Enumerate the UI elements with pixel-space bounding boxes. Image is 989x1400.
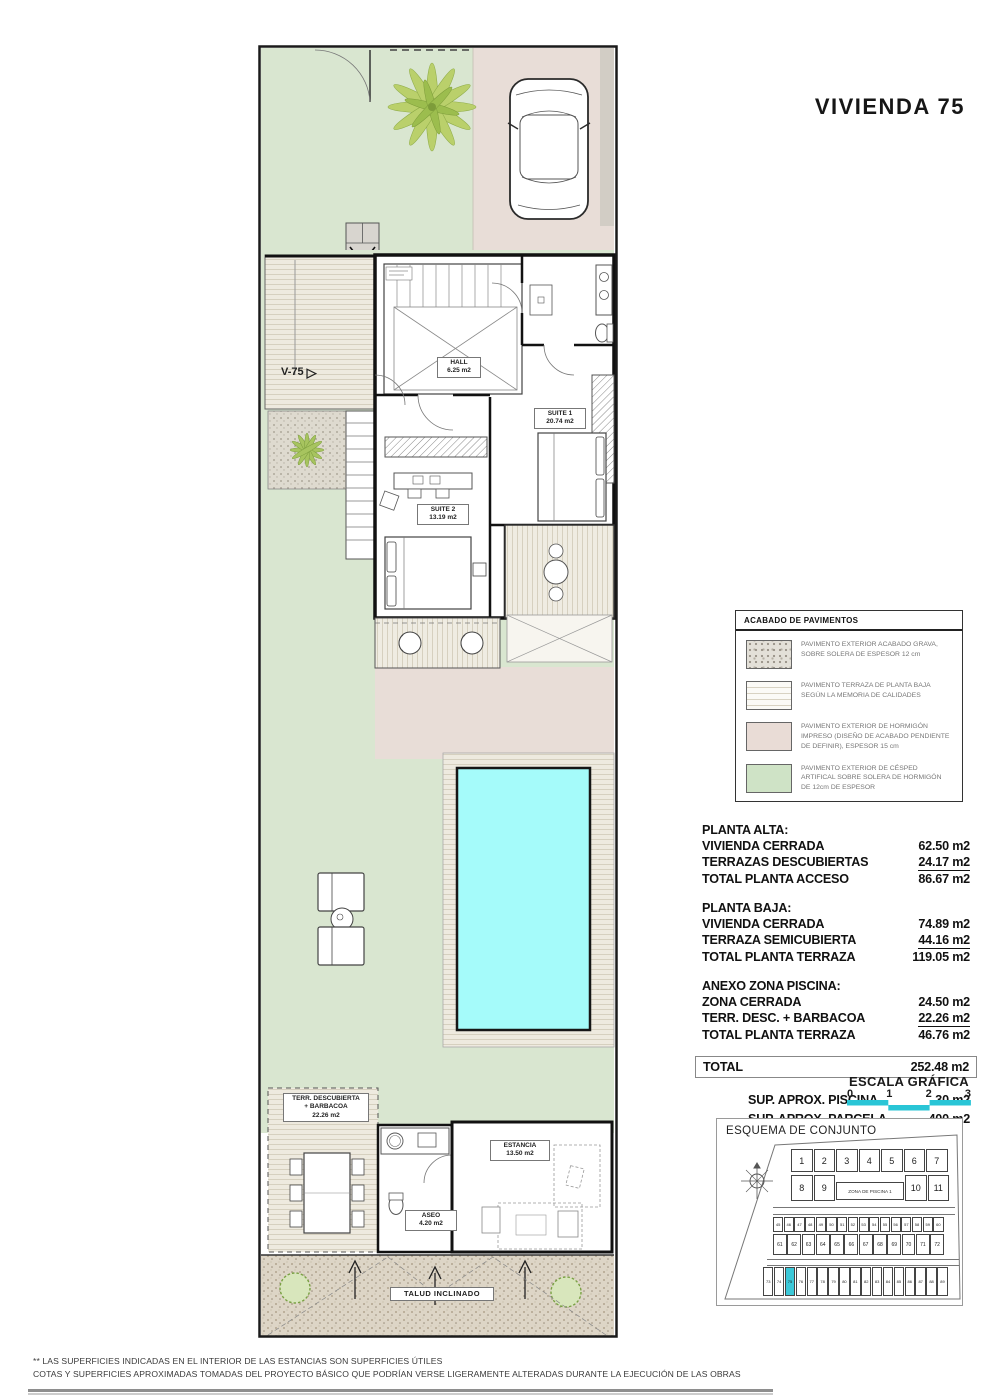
scheme-unit: 51: [837, 1217, 847, 1232]
scheme-unit: 79: [828, 1267, 838, 1296]
footer-rule: [28, 1389, 773, 1395]
suite1-bed: [538, 433, 606, 521]
scheme-unit: 62: [787, 1234, 801, 1255]
area-value: 119.05 m2: [912, 949, 970, 965]
scheme-unit: 7: [926, 1149, 948, 1172]
scheme-unit: 88: [926, 1267, 936, 1296]
scheme-unit: 89: [937, 1267, 947, 1296]
scheme-row-2a: 89: [791, 1175, 835, 1201]
area-label: TOTAL PLANTA TERRAZA: [702, 949, 855, 965]
sheet-title: VIVIENDA 75: [750, 94, 965, 120]
scheme-unit: 4: [859, 1149, 881, 1172]
legend-item-gravel: PAVIMENTO EXTERIOR ACABADO GRAVA, SOBRE …: [746, 640, 952, 669]
scheme-unit: 71: [916, 1234, 930, 1255]
area-row: ZONA CERRADA 24.50 m2: [702, 994, 970, 1010]
legend-item-grass: PAVIMENTO EXTERIOR DE CÉSPED ARTIFICAL S…: [746, 764, 952, 794]
scheme-unit: 87: [915, 1267, 925, 1296]
scheme-row-1: 1234567: [791, 1149, 948, 1172]
areas-header: PLANTA BAJA:: [702, 900, 970, 916]
scheme-unit: 68: [873, 1234, 887, 1255]
floor-plan-drawing: [258, 45, 618, 1338]
areas-header: PLANTA ALTA:: [702, 822, 970, 838]
scheme-unit: 84: [883, 1267, 893, 1296]
scheme-unit: 66: [844, 1234, 858, 1255]
scheme-unit: 8: [791, 1175, 813, 1201]
covered-terrace: [505, 525, 614, 618]
scheme-unit: 70: [902, 1234, 916, 1255]
scheme-unit: 59: [923, 1217, 933, 1232]
scheme-row-4: 616263646566676869707172: [773, 1234, 944, 1255]
scheme-unit: 63: [802, 1234, 816, 1255]
concrete-swatch: [746, 722, 792, 751]
uncovered-terrace: [507, 615, 612, 662]
scheme-unit: 83: [872, 1267, 882, 1296]
scheme-unit: 67: [859, 1234, 873, 1255]
scheme-unit: 64: [816, 1234, 830, 1255]
legend-item-concrete: PAVIMENTO EXTERIOR DE HORMIGÓN IMPRESO (…: [746, 722, 952, 752]
road-band: [767, 1259, 959, 1266]
areas-rows: VIVIENDA CERRADA 74.89 m2 TERRAZA SEMICU…: [702, 916, 970, 965]
pool-zone-label: ZONA DE PISCINA 1: [836, 1182, 904, 1200]
total-label: TOTAL: [703, 1060, 743, 1074]
scheme-unit: 45: [773, 1217, 783, 1232]
areas-section-planta-alta: PLANTA ALTA: VIVIENDA CERRADA 62.50 m2 T…: [702, 822, 970, 887]
scheme-unit: 60: [933, 1217, 943, 1232]
scheme-unit: 11: [928, 1175, 950, 1201]
room-label-aseo: ASEO 4.20 m2: [405, 1210, 457, 1231]
area-label: VIVIENDA CERRADA: [702, 916, 824, 932]
scheme-row-3: 45464748495051525354555657585960: [773, 1217, 944, 1232]
area-label: TOTAL PLANTA ACCESO: [702, 871, 849, 887]
scheme-row-2b: 1011: [905, 1175, 949, 1201]
areas-header: ANEXO ZONA PISCINA:: [702, 978, 970, 994]
scheme-unit: 61: [773, 1234, 787, 1255]
road-band: [773, 1207, 955, 1215]
room-label-terraza: TERR. DESCUBIERTA + BARBACOA 22.26 m2: [283, 1093, 369, 1122]
room-label-suite2: SUITE 2 13.19 m2: [417, 504, 469, 525]
scheme-unit: 58: [912, 1217, 922, 1232]
total-value: 252.48 m2: [911, 1060, 969, 1074]
scale-bar: [847, 1100, 971, 1111]
area-value: 24.17 m2: [918, 854, 970, 871]
area-value: 62.50 m2: [918, 838, 970, 854]
footnote: ** LAS SUPERFICIES INDICADAS EN EL INTER…: [33, 1355, 741, 1382]
areas-rows: ZONA CERRADA 24.50 m2 TERR. DESC. + BARB…: [702, 994, 970, 1043]
scheme-unit: 57: [901, 1217, 911, 1232]
area-row: TOTAL PLANTA TERRAZA 119.05 m2: [702, 949, 970, 965]
legend-item-terrace: PAVIMENTO TERRAZA DE PLANTA BAJA SEGÚN L…: [746, 681, 952, 710]
gravel-swatch: [746, 640, 792, 669]
areas-section-anexo-piscina: ANEXO ZONA PISCINA: ZONA CERRADA 24.50 m…: [702, 978, 970, 1043]
area-value: 74.89 m2: [918, 916, 970, 932]
scheme-unit: 65: [830, 1234, 844, 1255]
areas-section-planta-baja: PLANTA BAJA: VIVIENDA CERRADA 74.89 m2 T…: [702, 900, 970, 965]
scheme-unit: 54: [869, 1217, 879, 1232]
car: [508, 79, 590, 219]
area-label: TERR. DESC. + BARBACOA: [702, 1010, 865, 1027]
exterior-stairs: [346, 411, 375, 559]
area-row: TOTAL PLANTA ACCESO 86.67 m2: [702, 871, 970, 887]
scheme-unit: 55: [880, 1217, 890, 1232]
scheme-unit: 50: [826, 1217, 836, 1232]
scheme-unit: 9: [814, 1175, 836, 1201]
lower-deck: [375, 618, 500, 668]
area-value: 44.16 m2: [918, 932, 970, 949]
scheme-row-5: 7374757677787980818283848586878889: [763, 1267, 948, 1296]
suite2-bed: [385, 537, 486, 609]
area-row: TERR. DESC. + BARBACOA 22.26 m2: [702, 1010, 970, 1027]
slope-label: TALUD INCLINADO: [390, 1287, 494, 1301]
area-value: 24.50 m2: [918, 994, 970, 1010]
concrete-band: [375, 667, 614, 759]
compass-icon: [741, 1163, 773, 1199]
scheme-unit: 76: [796, 1267, 806, 1296]
scheme-unit: 5: [881, 1149, 903, 1172]
area-value: 22.26 m2: [918, 1010, 970, 1027]
scheme-unit: 10: [905, 1175, 927, 1201]
scheme-unit: 80: [839, 1267, 849, 1296]
entry-arrow-icon: ▷: [307, 367, 317, 378]
scheme-unit: 77: [807, 1267, 817, 1296]
area-label: TERRAZA SEMICUBIERTA: [702, 932, 856, 949]
scheme-unit: 46: [784, 1217, 794, 1232]
entry-marker-label: V-75: [281, 366, 304, 378]
scale-tick: 1: [886, 1089, 892, 1100]
room-label-suite1: SUITE 1 20.74 m2: [534, 408, 586, 429]
terrace-swatch: [746, 681, 792, 710]
areas-rows: VIVIENDA CERRADA 62.50 m2 TERRAZAS DESCU…: [702, 838, 970, 887]
scheme-unit: 86: [905, 1267, 915, 1296]
annex-aseo: [378, 1125, 452, 1252]
scale-title: ESCALA GRÁFICA: [843, 1074, 975, 1089]
footnote-line1: ** LAS SUPERFICIES INDICADAS EN EL INTER…: [33, 1355, 741, 1368]
plan-sheet: V-75 ▷ HALL 6.25 m2 SUITE 1 20.74 m2 SUI…: [0, 0, 989, 1400]
scale-tick: 0: [847, 1089, 853, 1100]
area-label: ZONA CERRADA: [702, 994, 801, 1010]
scheme-unit: 82: [861, 1267, 871, 1296]
area-row: TOTAL PLANTA TERRAZA 46.76 m2: [702, 1027, 970, 1043]
site-scheme: ESQUEMA DE CONJUNTO 1234567 89: [716, 1118, 963, 1306]
scheme-unit: 78: [817, 1267, 827, 1296]
area-value: 46.76 m2: [918, 1027, 970, 1043]
scheme-unit: 6: [904, 1149, 926, 1172]
area-row: VIVIENDA CERRADA 62.50 m2: [702, 838, 970, 854]
scheme-unit: 74: [774, 1267, 784, 1296]
scheme-unit: 2: [814, 1149, 836, 1172]
area-label: TOTAL PLANTA TERRAZA: [702, 1027, 855, 1043]
scheme-unit: 73: [763, 1267, 773, 1296]
graphic-scale: ESCALA GRÁFICA 0123: [843, 1074, 975, 1111]
legend-title: ACABADO DE PAVIMENTOS: [736, 611, 962, 631]
scheme-unit: 52: [848, 1217, 858, 1232]
area-value: 86.67 m2: [918, 871, 970, 887]
area-row: VIVIENDA CERRADA 74.89 m2: [702, 916, 970, 932]
building: [375, 255, 614, 618]
scheme-unit: 48: [805, 1217, 815, 1232]
scheme-unit: 47: [794, 1217, 804, 1232]
room-label-hall: HALL 6.25 m2: [437, 357, 481, 378]
scheme-unit: 53: [859, 1217, 869, 1232]
scheme-unit: 1: [791, 1149, 813, 1172]
scheme-unit: 72: [930, 1234, 944, 1255]
entry-marker: V-75 ▷: [281, 366, 317, 378]
pool: [457, 768, 590, 1030]
scale-ticks: 0123: [847, 1089, 971, 1100]
area-label: VIVIENDA CERRADA: [702, 838, 824, 854]
area-row: TERRAZAS DESCUBIERTAS 24.17 m2: [702, 854, 970, 871]
scheme-unit: 81: [850, 1267, 860, 1296]
scheme-unit: 3: [836, 1149, 858, 1172]
scale-tick: 3: [965, 1089, 971, 1100]
dining-set: [290, 1153, 364, 1233]
scale-tick: 2: [926, 1089, 932, 1100]
area-row: TERRAZA SEMICUBIERTA 44.16 m2: [702, 932, 970, 949]
area-label: TERRAZAS DESCUBIERTAS: [702, 854, 868, 871]
room-label-estancia: ESTANCIA 13.50 m2: [490, 1140, 550, 1161]
left-deck: [265, 255, 375, 409]
scheme-unit: 69: [887, 1234, 901, 1255]
scheme-unit: 75: [785, 1267, 795, 1296]
pavement-legend: ACABADO DE PAVIMENTOS PAVIMENTO EXTERIOR…: [735, 610, 963, 802]
scheme-unit: 85: [894, 1267, 904, 1296]
footnote-line2: COTAS Y SUPERFICIES APROXIMADAS TOMADAS …: [33, 1368, 741, 1381]
scheme-unit: 56: [891, 1217, 901, 1232]
grass-swatch: [746, 764, 792, 793]
scheme-unit: 49: [816, 1217, 826, 1232]
